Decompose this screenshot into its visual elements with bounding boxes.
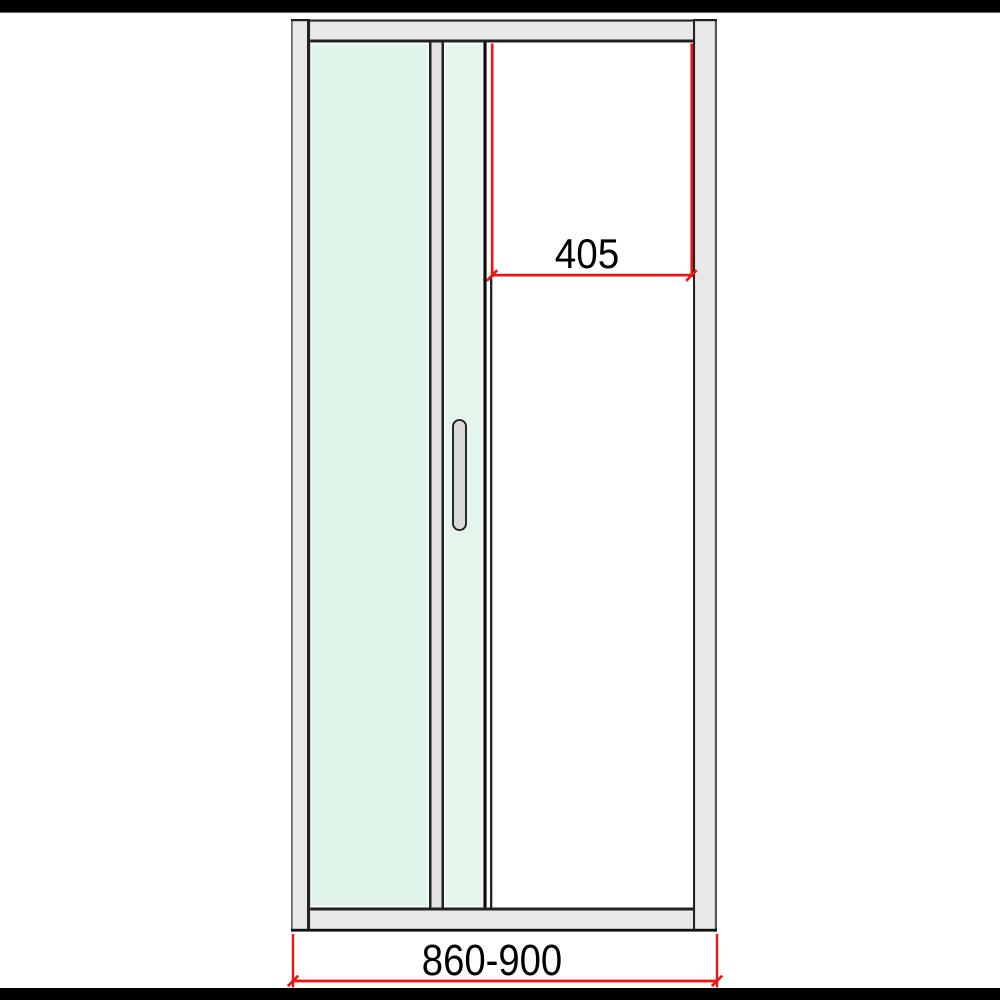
- svg-text:405: 405: [555, 229, 619, 277]
- svg-text:860-900: 860-900: [422, 936, 562, 985]
